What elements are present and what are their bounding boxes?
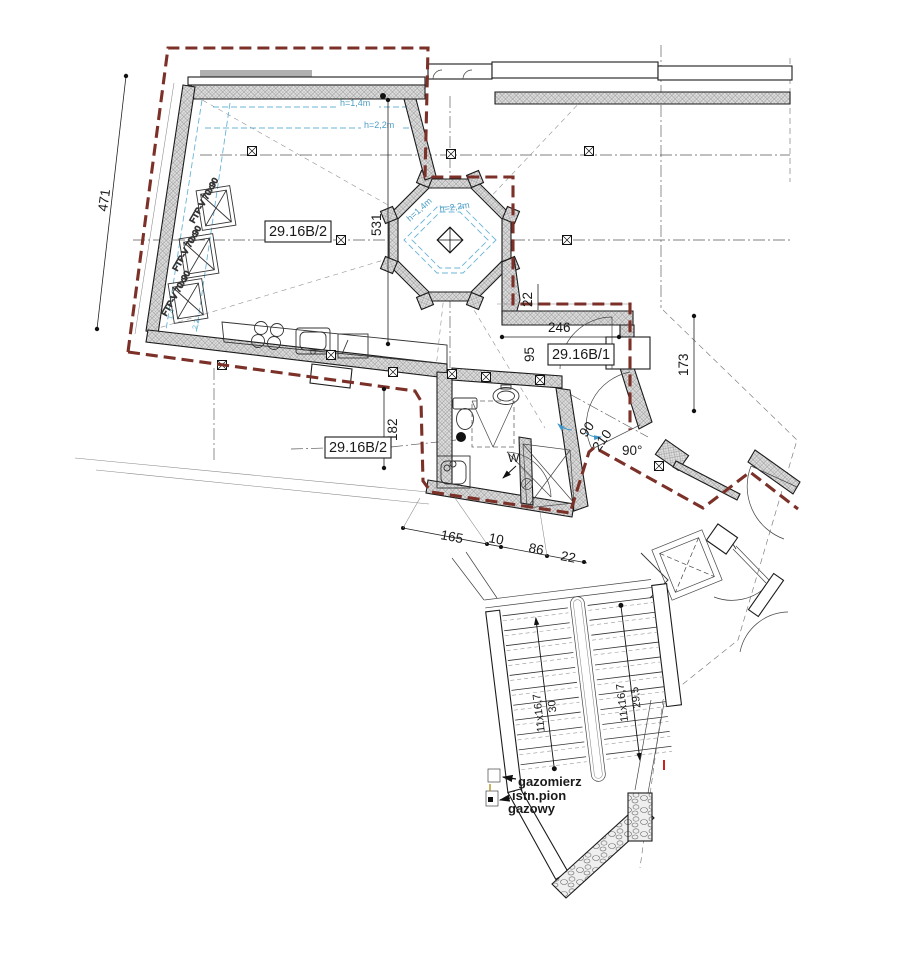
room-b2-bottom-wall [146,330,447,378]
stair-to-corridor-wall [452,552,497,600]
corridor-door-leaf [733,546,769,583]
room-b2-top-wall [191,85,425,99]
lower-right-door-arc [740,612,788,652]
top-wall-outer-band [188,77,425,85]
stair-right-wall [652,584,682,707]
shower [472,401,514,447]
floor-plan-page: h=1,4m h=2,2m 1,4 2,2 [0,0,903,960]
walls [135,62,800,598]
lower-cabinet [310,364,352,388]
bathroom-right-wall [556,388,588,511]
dim-246: 246 [548,320,571,335]
dim-86: 86 [527,540,545,558]
skylight-2-label: FTP-V 70x90 [170,224,203,273]
stair-left-width-label: 30 [546,699,559,713]
washer-mark: W [508,451,520,465]
gas-riser-label-2: gazowy [508,801,556,816]
dim-22-wall: 22 [520,292,535,307]
washer-arrow [503,466,516,478]
dim-angle-90: 90° [622,443,642,458]
dim-165: 165 [439,527,464,546]
height-line-2-2-label: h=2,2m [364,120,394,130]
dim-22-chain: 22 [559,548,577,566]
gas-meter-label: gazomierz [518,774,582,789]
room-label-b1: 29.16B/1 [552,347,610,363]
room-label-b2: 29.16B/2 [269,224,327,240]
gas-annotations: gazomierz istn.pion gazowy [486,769,582,816]
skylight-1-label: FTP-V 70x90 [187,176,220,225]
dim-531: 531 [369,213,384,236]
dim-10: 10 [487,530,505,548]
corridor-door-block [706,524,737,554]
lower-right-door-leaf [748,574,783,617]
dim-95: 95 [522,347,537,362]
stair-left-run-label: 11x16,7 [531,693,548,733]
stone-pier [628,793,652,841]
room-label-b2-lower: 29.16B/2 [329,440,387,456]
stair-right-lower-wall [635,700,664,793]
washbasin-top [493,385,519,405]
top-right-hatched-wall [495,92,790,104]
stair-left-wall [486,610,522,792]
corridor-partition [673,461,740,500]
bathroom-bottom-wall [426,480,574,517]
floor-plan-svg: h=1,4m h=2,2m 1,4 2,2 [0,0,903,960]
drain-point [456,432,466,442]
toilet [453,398,477,430]
room-b1-right-wall-lower [620,368,652,429]
staircase: 11x16,7 30 11x16,7 29,5 [484,578,700,884]
existing-wall-top-2 [492,62,658,78]
tower-top-connector-wall [404,99,436,180]
bathroom-left-wall [437,372,452,492]
dim-471: 471 [95,188,113,212]
existing-wall-top-3 [658,66,792,80]
dim-173: 173 [676,353,691,376]
